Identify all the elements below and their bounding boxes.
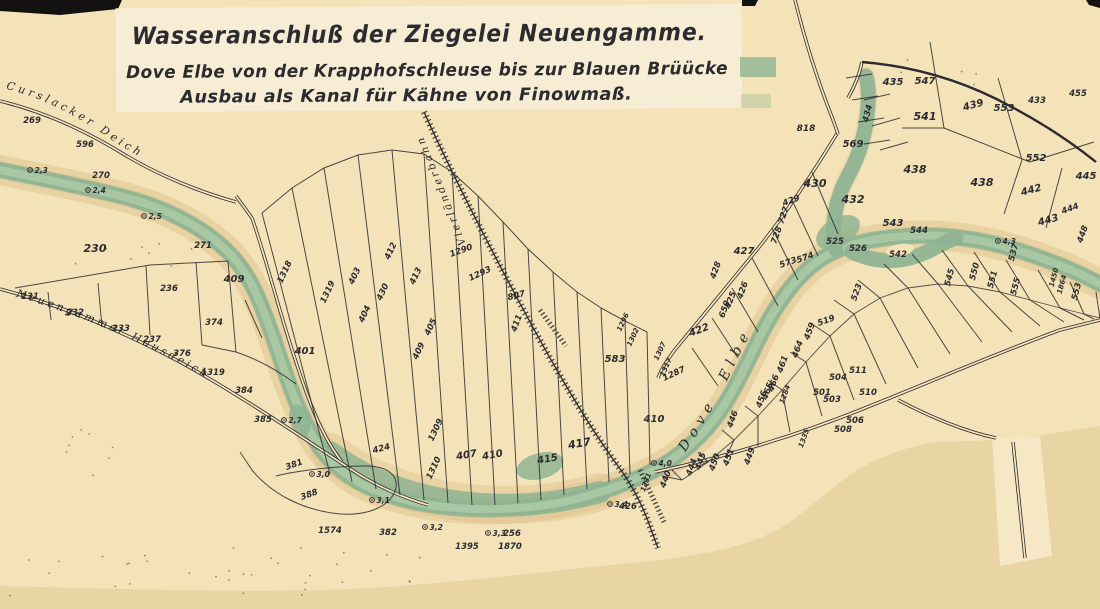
parcel-number: 511 [849, 366, 867, 376]
depth-value: 2,3 [35, 166, 48, 175]
speckle [900, 72, 902, 74]
speckle [419, 557, 421, 559]
parcel-number: 1574 [318, 526, 342, 536]
speckle [92, 475, 94, 477]
parcel-number: 236 [160, 284, 178, 294]
parcel-number: 410 [643, 414, 665, 425]
parcel-number: 455 [1068, 89, 1087, 99]
sounding-marker-dot [609, 503, 611, 505]
parcel-number: 525 [826, 237, 844, 247]
speckle [108, 457, 110, 459]
parcel-number: 1870 [498, 542, 522, 552]
parcel-number: 547 [915, 76, 936, 87]
parcel-number: 544 [910, 226, 928, 236]
depth-value: 4,3 [1003, 237, 1016, 246]
parcel-number: 269 [23, 116, 41, 126]
speckle [141, 246, 143, 248]
parcel-number: 510 [859, 388, 877, 398]
speckle [242, 592, 244, 594]
speckle [975, 73, 977, 75]
speckle [251, 574, 253, 576]
parcel-number: 433 [1027, 96, 1046, 106]
parcel-number: 271 [194, 241, 212, 251]
title-line1: Wasseranschluß der Ziegelei Neuengamme. [132, 18, 707, 50]
parcel-number: 230 [84, 242, 107, 255]
speckle [961, 71, 963, 73]
speckle [336, 563, 338, 565]
parcel-number: 432 [841, 193, 865, 206]
speckle [102, 556, 104, 558]
parcel-number: 384 [235, 386, 253, 396]
speckle [228, 579, 230, 581]
sounding-marker-dot [997, 240, 999, 242]
speckle [343, 552, 345, 554]
speckle [72, 436, 74, 438]
parcel-number: 445 [1075, 171, 1097, 182]
sounding-marker-dot [87, 189, 89, 191]
green-highlight-faint [741, 94, 771, 108]
speckle [170, 265, 172, 267]
parcel-number: 270 [92, 171, 110, 181]
parcel-number: 430 [803, 177, 827, 190]
speckle [386, 554, 388, 556]
sounding-marker-dot [424, 526, 426, 528]
parcel-number: 818 [797, 124, 816, 134]
speckle [215, 576, 217, 578]
parcel-number: 596 [76, 140, 94, 150]
sounding-marker-dot [283, 419, 285, 421]
parcel-number: 435 [882, 77, 904, 88]
speckle [28, 559, 30, 561]
parcel-number: 504 [829, 373, 847, 383]
sounding-marker-dot [143, 215, 145, 217]
green-highlight-swatch [740, 57, 776, 77]
speckle [158, 243, 160, 245]
speckle [300, 547, 302, 549]
title-line3: Ausbau als Kanal für Kähne von Finowmaß. [178, 85, 632, 108]
parcel-number: 256 [503, 529, 521, 539]
sounding-marker-dot [487, 532, 489, 534]
title-line2: Dove Elbe von der Krapphofschleuse bis z… [126, 59, 728, 83]
depth-value: 3,3 [493, 529, 506, 538]
parcel-number: 237 [143, 335, 161, 345]
speckle [68, 445, 70, 447]
sounding-marker-dot [371, 499, 373, 501]
speckle [242, 573, 244, 575]
speckle [58, 560, 60, 562]
parcel-number: 231 [21, 292, 39, 302]
depth-value: 3,4 [615, 500, 628, 509]
depth-value: 2,4 [93, 186, 106, 195]
parcel-number: 385 [254, 415, 272, 425]
parcel-number: 569 [843, 139, 864, 150]
parcel-number: 541 [914, 110, 937, 123]
speckle [130, 258, 132, 260]
speckle [270, 557, 272, 559]
speckle [342, 581, 344, 583]
speckle [228, 570, 230, 572]
parcel-number: 583 [605, 354, 626, 365]
parcel-number: 374 [205, 318, 223, 328]
parcel-number: 1395 [455, 542, 479, 552]
map-canvas: Wasseranschluß der Ziegelei Neuengamme. … [0, 0, 1100, 609]
speckle [148, 252, 150, 254]
speckle [304, 589, 306, 591]
historical-map-svg: Wasseranschluß der Ziegelei Neuengamme. … [0, 0, 1100, 609]
speckle [301, 594, 303, 596]
speckle [146, 560, 148, 562]
speckle [129, 583, 131, 585]
parcel-number: 553 [994, 103, 1015, 114]
parcel-number: 401 [294, 346, 316, 357]
speckle [191, 248, 193, 250]
speckle [80, 429, 82, 431]
speckle [66, 451, 68, 453]
depth-value: 2,5 [149, 212, 162, 221]
parcel-number: 1319 [201, 368, 225, 378]
parcel-number: 503 [823, 395, 841, 405]
speckle [409, 581, 411, 583]
depth-value: 2,7 [289, 416, 303, 425]
speckle [309, 575, 311, 577]
parcel-number: 427 [733, 246, 755, 257]
speckle [126, 563, 128, 565]
speckle [48, 572, 50, 574]
speckle [114, 585, 116, 587]
parcel-number: 552 [1026, 153, 1047, 164]
title-block: Wasseranschluß der Ziegelei Neuengamme. … [116, 4, 743, 112]
speckle [973, 84, 975, 86]
depth-value: 3,2 [430, 523, 443, 532]
speckle [189, 572, 191, 574]
sounding-marker-dot [29, 169, 31, 171]
sounding-marker-dot [311, 473, 313, 475]
speckle [112, 447, 114, 449]
parcel-number: 438 [903, 163, 927, 176]
speckle [277, 562, 279, 564]
speckle [128, 563, 130, 565]
parcel-number: 232 [66, 308, 84, 318]
speckle [9, 595, 11, 597]
parcel-number: 508 [834, 425, 852, 435]
parcel-number: 543 [883, 218, 904, 229]
speckle [75, 263, 77, 265]
speckle [907, 59, 909, 61]
speckle [144, 555, 146, 557]
speckle [88, 433, 90, 435]
parcel-number: 438 [970, 176, 994, 189]
depth-value: 4,0 [659, 459, 672, 468]
parcel-number: 542 [889, 250, 907, 260]
depth-value: 3,0 [317, 470, 330, 479]
speckle [232, 547, 234, 549]
speckle [370, 570, 372, 572]
parcel-number: 233 [112, 324, 130, 334]
speckle [305, 582, 307, 584]
parcel-number: 382 [379, 528, 397, 538]
parcel-number: 526 [849, 244, 867, 254]
parcel-number: 376 [173, 349, 191, 359]
parcel-number: 409 [223, 274, 245, 285]
sounding-marker-dot [653, 462, 655, 464]
depth-value: 3,1 [377, 496, 390, 505]
